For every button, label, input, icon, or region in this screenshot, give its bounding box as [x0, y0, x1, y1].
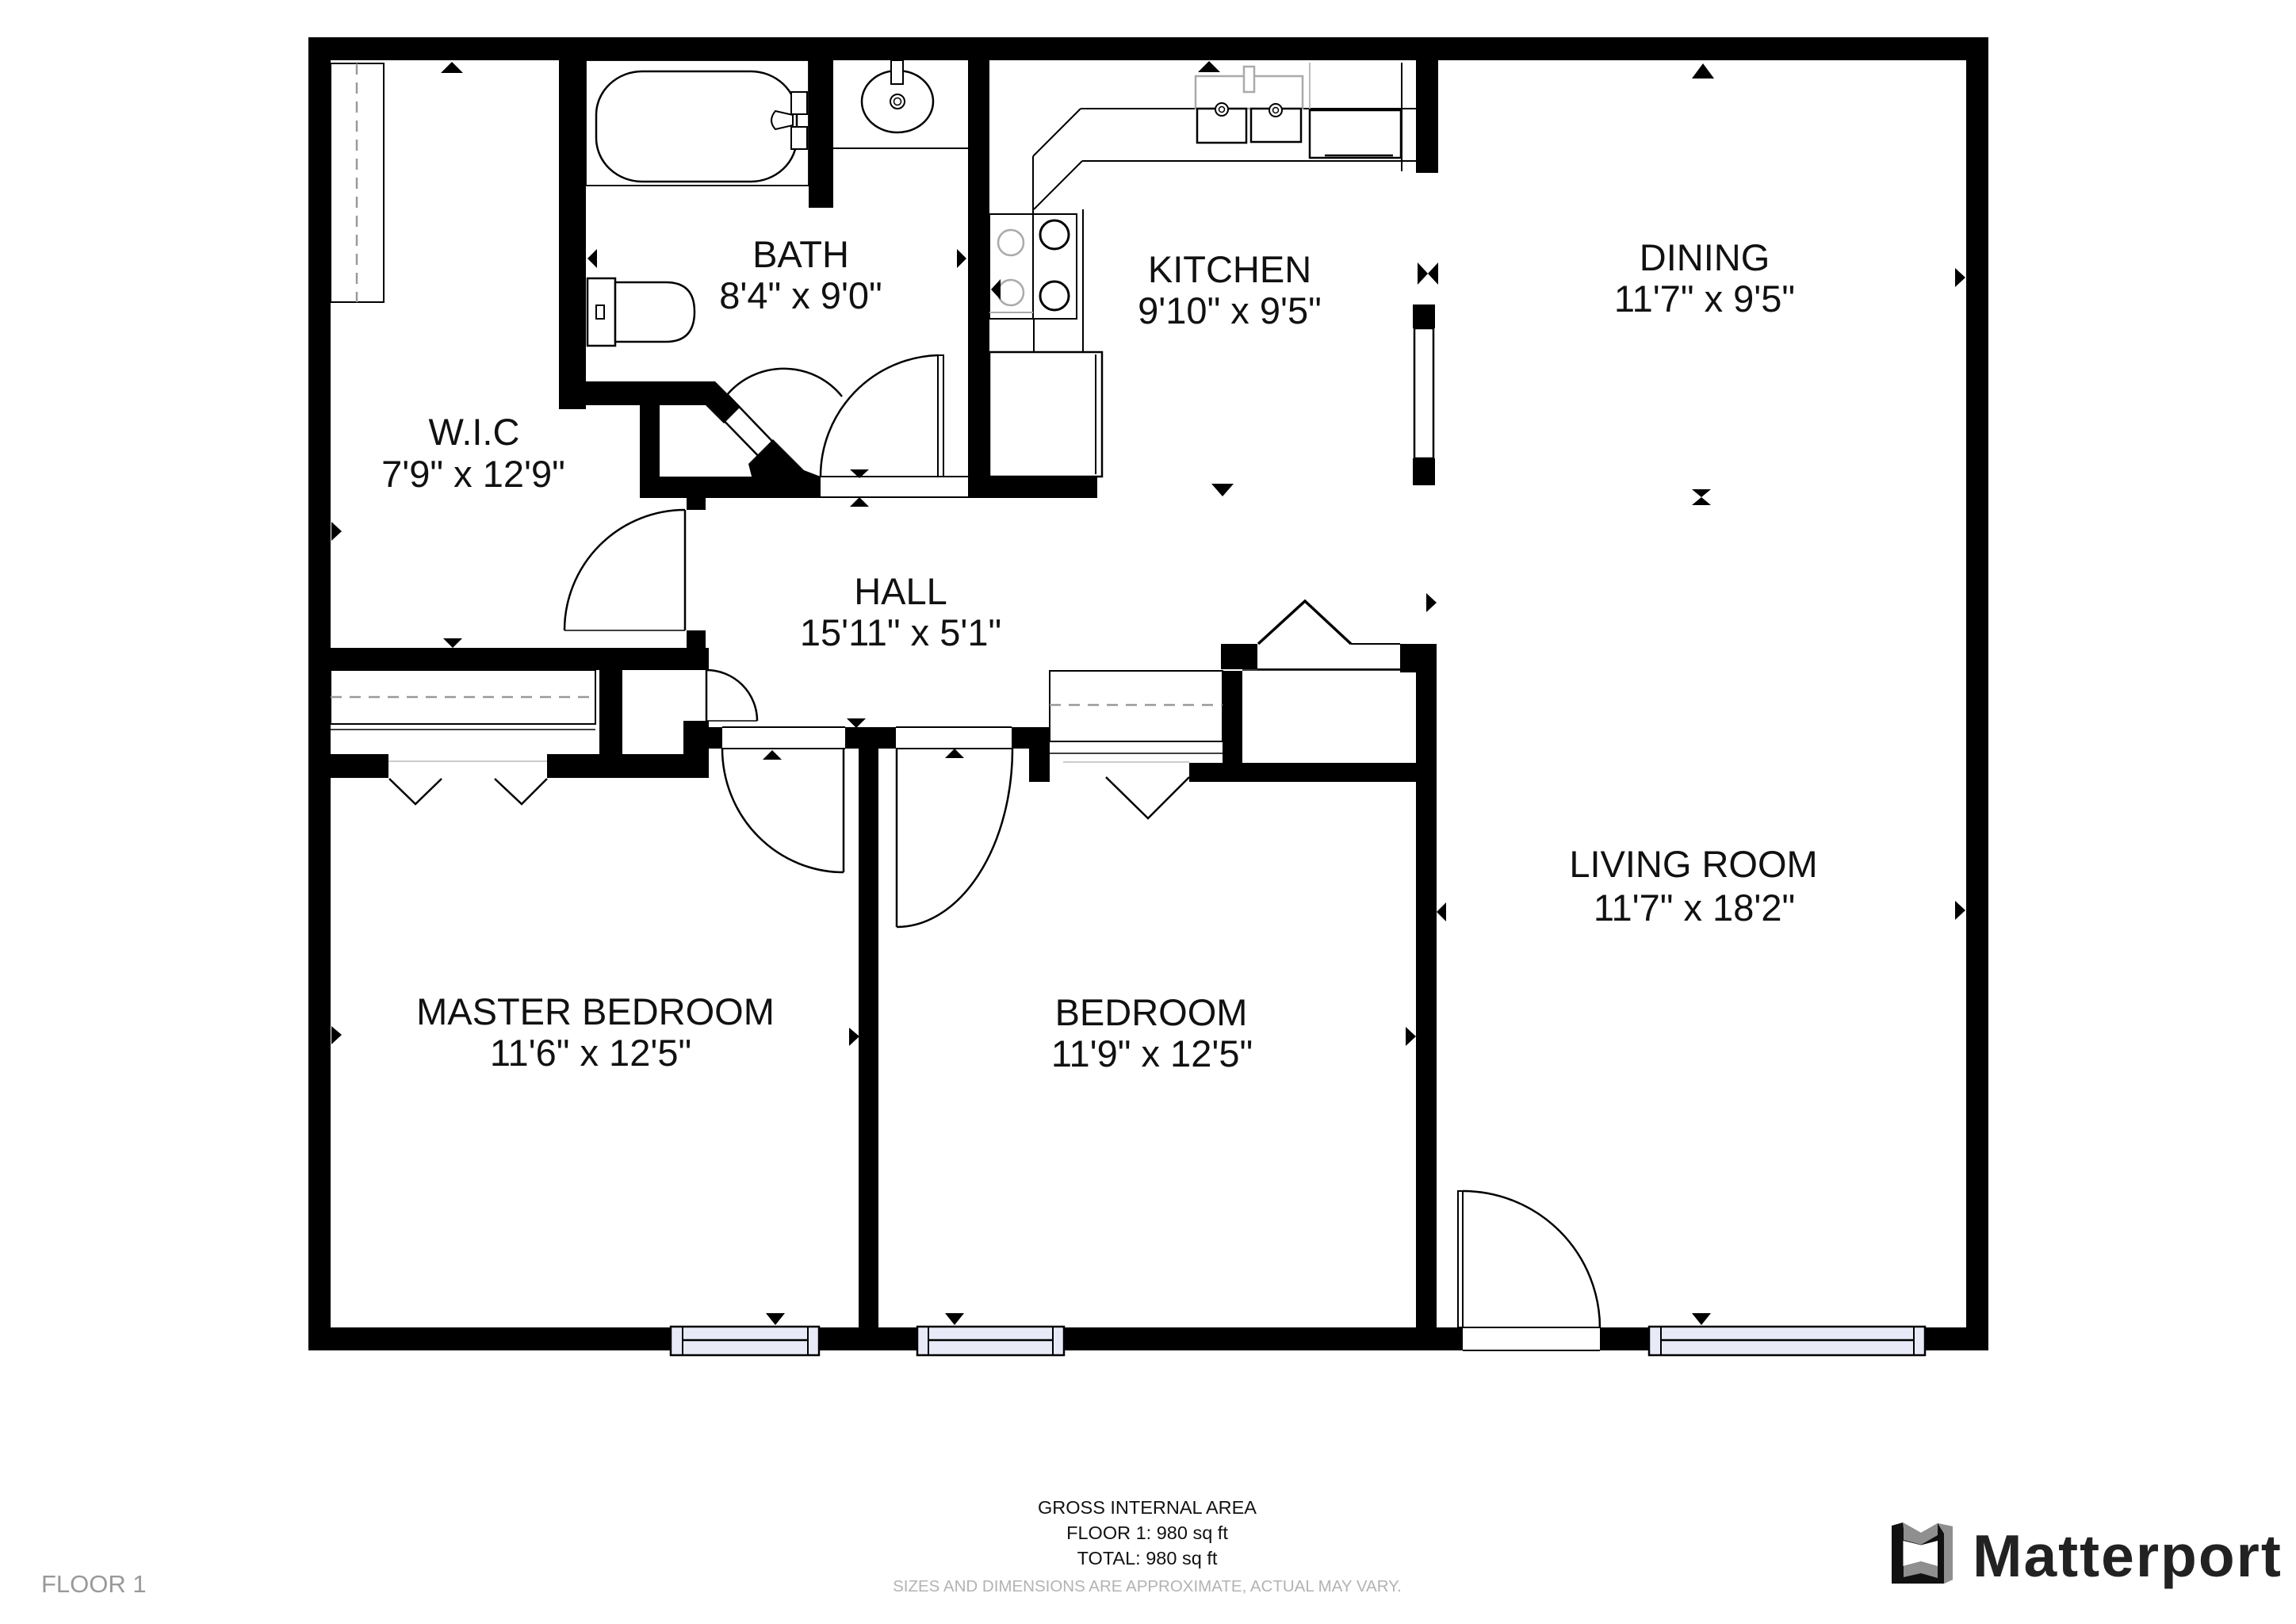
svg-text:9'10" x 9'5": 9'10" x 9'5": [1138, 289, 1322, 331]
svg-text:DINING: DINING: [1640, 236, 1770, 278]
svg-text:HALL: HALL: [854, 570, 947, 612]
svg-text:15'11" x 5'1": 15'11" x 5'1": [800, 611, 1001, 653]
svg-text:SIZES AND DIMENSIONS ARE APPRO: SIZES AND DIMENSIONS ARE APPROXIMATE, AC…: [893, 1577, 1402, 1595]
svg-text:FLOOR 1: FLOOR 1: [41, 1570, 147, 1598]
svg-text:KITCHEN: KITCHEN: [1148, 248, 1311, 290]
svg-text:LIVING ROOM: LIVING ROOM: [1569, 843, 1817, 885]
svg-text:GROSS INTERNAL AREA: GROSS INTERNAL AREA: [1038, 1497, 1257, 1518]
svg-text:BEDROOM: BEDROOM: [1055, 991, 1248, 1033]
svg-text:TOTAL: 980 sq ft: TOTAL: 980 sq ft: [1077, 1548, 1218, 1568]
svg-text:MASTER BEDROOM: MASTER BEDROOM: [416, 990, 775, 1032]
svg-text:11'7" x 18'2": 11'7" x 18'2": [1594, 887, 1795, 929]
svg-text:8'4" x 9'0": 8'4" x 9'0": [719, 274, 882, 316]
svg-text:Matterport: Matterport: [1973, 1522, 2283, 1589]
svg-text:7'9" x 12'9": 7'9" x 12'9": [381, 453, 565, 495]
svg-text:11'7" x 9'5": 11'7" x 9'5": [1614, 278, 1795, 320]
svg-text:W.I.C: W.I.C: [429, 411, 520, 453]
svg-text:BATH: BATH: [752, 233, 849, 275]
svg-text:11'6" x 12'5": 11'6" x 12'5": [490, 1032, 691, 1074]
svg-text:FLOOR 1: 980 sq ft: FLOOR 1: 980 sq ft: [1066, 1522, 1228, 1543]
svg-text:11'9" x 12'5": 11'9" x 12'5": [1051, 1032, 1253, 1074]
